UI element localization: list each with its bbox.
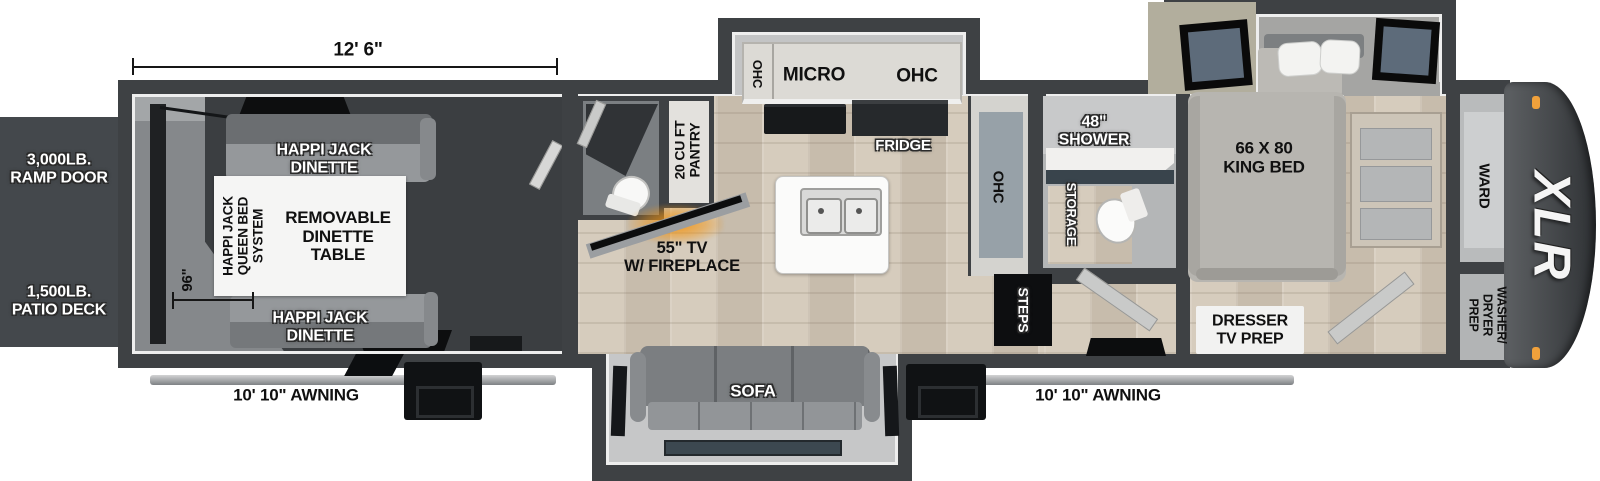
dinette-bottom-label: HAPPI JACK DINETTE — [273, 309, 368, 344]
awning-bar-left — [150, 375, 556, 385]
window-glass — [1380, 26, 1431, 75]
garage-dim-line — [172, 299, 254, 301]
pillow-right — [1319, 39, 1361, 75]
garage-dim-tick-right — [252, 292, 254, 309]
garage-living-wall — [562, 94, 578, 368]
kitchen-sink — [800, 188, 882, 236]
entry-doorway-shadow — [1086, 338, 1166, 356]
dim-garage-width-label: 96" — [180, 268, 197, 291]
dim-length-label: 12' 6" — [333, 41, 382, 62]
bed-foot-shadow — [1196, 268, 1338, 280]
garage-wall-window-bottom2 — [470, 336, 522, 351]
dimension-line — [133, 66, 558, 68]
queen-bed-system-label: HAPPI JACK QUEEN BED SYSTEM — [222, 196, 267, 276]
dimension-tick-left — [132, 58, 134, 75]
ohc-slide-right-label: OHC — [896, 67, 938, 88]
bed-rail-right — [1334, 96, 1346, 276]
ward-label: WARD — [1475, 163, 1492, 208]
washer-dryer-label: WASHER/ DRYER PREP — [1466, 287, 1507, 344]
steps-label: STEPS — [1015, 288, 1030, 333]
step-tread — [918, 386, 978, 418]
pantry-label: 20 CU FT PANTRY — [673, 120, 704, 179]
fridge-label: FRIDGE — [875, 138, 930, 155]
tv-fireplace-label: 55" TV W/ FIREPLACE — [624, 239, 740, 275]
king-bed — [1188, 92, 1346, 282]
ramp-door-edge — [150, 104, 166, 344]
ward-wd-wall — [1452, 262, 1512, 274]
awning-right-label: 10' 10" AWNING — [1035, 387, 1161, 406]
dinette-table-label: REMOVABLE DINETTE TABLE — [285, 209, 391, 265]
sofa-arm-right — [864, 352, 880, 422]
shower-label: 48" SHOWER — [1059, 113, 1130, 148]
window-glass — [1188, 28, 1244, 82]
dresser-drawer — [1360, 128, 1432, 160]
fridge-box — [852, 100, 948, 136]
king-bed-label: 66 X 80 KING BED — [1223, 139, 1305, 176]
dinette-bench-arm-top — [420, 118, 436, 180]
bedroom-window-right — [1372, 18, 1440, 84]
dinette-top-label: HAPPI JACK DINETTE — [277, 141, 372, 176]
bedroom-dresser — [1350, 112, 1442, 248]
range-cooktop — [764, 104, 846, 134]
dimension-tick-right — [556, 58, 558, 75]
dinette-bench-arm-bottom — [424, 292, 438, 346]
sofa-floor-mat — [664, 440, 842, 456]
sofa-label: SOFA — [730, 383, 776, 402]
pillow-left — [1277, 41, 1323, 78]
floorplan-canvas: 12' 6" 96" 3,000LB. RAMP DOOR 1,500LB. P… — [0, 0, 1600, 481]
sink-faucet-right — [856, 208, 862, 214]
sofa-window-left — [611, 366, 627, 436]
sofa-window-right — [883, 366, 899, 436]
sink-basin-left — [806, 198, 842, 234]
awning-left-label: 10' 10" AWNING — [233, 387, 359, 406]
sofa-seat — [648, 402, 862, 430]
ohc-slide-left-label: OHC — [750, 60, 764, 88]
ramp-door-label: 3,000LB. RAMP DOOR — [10, 151, 107, 186]
sink-basin-right — [844, 198, 878, 234]
bedroom-window-left — [1179, 19, 1252, 91]
step-tread — [416, 386, 474, 418]
patio-deck-label: 1,500LB. PATIO DECK — [12, 283, 106, 318]
cabinet-divider — [772, 44, 774, 99]
bedroom-slide-opening-patch — [1344, 82, 1440, 96]
ohc-tall-label: OHC — [989, 171, 1006, 204]
sink-faucet-left — [818, 208, 824, 214]
storage-label: STORAGE — [1064, 183, 1078, 246]
micro-label: MICRO — [783, 66, 845, 87]
entry-steps-wedge — [344, 354, 404, 376]
bed-rail-left — [1188, 96, 1200, 276]
bedroom-ward-wall — [1446, 92, 1460, 368]
garage-dim-tick-left — [172, 292, 174, 309]
bathroom-bottom-wall — [1028, 268, 1188, 284]
entry-steps-right — [906, 364, 986, 420]
sofa-arm-left — [630, 352, 646, 422]
marker-light-top — [1532, 96, 1540, 109]
marker-light-bottom — [1532, 347, 1540, 360]
dresser-drawer — [1360, 166, 1432, 202]
dresser-drawer — [1360, 208, 1432, 240]
entry-steps-left — [404, 362, 482, 420]
brand-logo: XLR — [1522, 171, 1579, 281]
dresser-tv-label: DRESSER TV PREP — [1212, 312, 1288, 347]
